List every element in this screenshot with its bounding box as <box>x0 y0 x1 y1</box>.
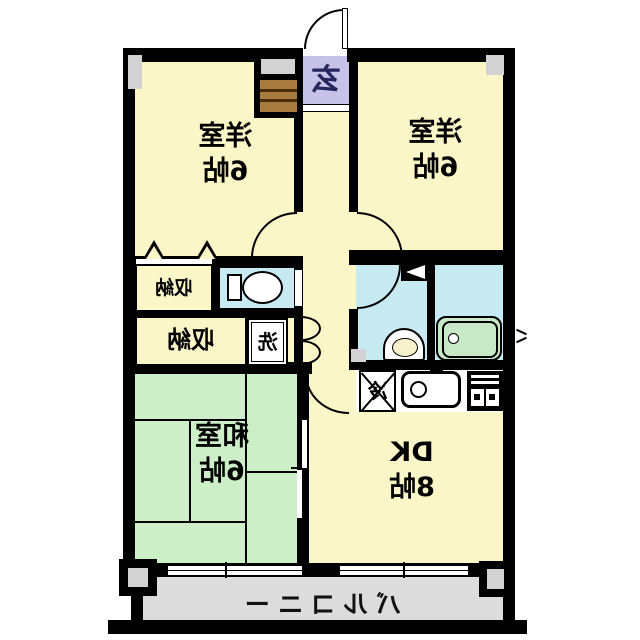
pillar-core <box>128 568 148 587</box>
burner-dot <box>489 394 495 400</box>
entrance-door-leaf <box>342 8 348 49</box>
pillar-icon <box>351 349 366 362</box>
wall-corridor-right-upper <box>349 62 358 212</box>
closet-triangle-inner <box>199 246 215 259</box>
cabinet-shelf-line <box>260 99 297 102</box>
faucet-icon <box>410 381 427 398</box>
entrance-door-arc-icon <box>304 9 344 49</box>
vent-mark-icon <box>516 329 527 335</box>
pillar-icon <box>128 55 142 89</box>
pillar-core <box>487 569 504 589</box>
bathtub-drain <box>448 333 459 344</box>
window-glass-line <box>168 570 302 571</box>
room-label-east-bedroom: 洋室6帖 <box>368 108 503 192</box>
stove-icon <box>467 371 503 411</box>
room-size: 6帖 <box>199 154 253 189</box>
room-name: 和室 <box>195 419 249 454</box>
room-name: 洋室 <box>199 119 253 154</box>
room-label-tatami: 和室6帖 <box>152 412 292 496</box>
room-name: DK <box>389 435 435 470</box>
bath-door-arrow-icon <box>406 265 425 279</box>
stove-burner <box>471 389 484 406</box>
washbasin-bowl <box>392 338 418 357</box>
floor-plan: 洋室6帖 洋室6帖 和室6帖 DK8帖 収納 収納 洗 冷 玄 バルコニー <box>0 0 640 640</box>
shoe-cabinet-icon <box>260 80 297 112</box>
stove-grill-bar <box>471 381 499 384</box>
stove-burner <box>486 389 499 406</box>
refrigerator-label: 冷 <box>359 370 396 412</box>
closet1-label: 収納 <box>137 266 211 310</box>
tatami-sliding-door-panel <box>297 470 302 518</box>
closet2-label: 収納 <box>137 318 245 364</box>
room-size: 8帖 <box>389 470 435 505</box>
wall-kitchen-top <box>349 360 503 370</box>
room-size: 6帖 <box>195 454 249 489</box>
kitchen-sink-icon <box>401 371 461 408</box>
entrance-step <box>303 104 349 112</box>
sliding-door-tick <box>291 467 302 469</box>
burner-dot <box>474 394 480 400</box>
room-label-west-bedroom: 洋室6帖 <box>158 112 293 196</box>
vent-mark-icon <box>516 337 527 343</box>
toilet-bowl <box>242 271 283 304</box>
toilet-door-opening <box>295 270 302 306</box>
balcony-label: バルコニー <box>133 587 505 623</box>
toilet-icon <box>227 274 242 301</box>
tatami-line <box>135 521 247 523</box>
wall-right <box>503 48 515 622</box>
bathtub-icon <box>436 316 502 361</box>
pillar-icon <box>486 55 504 75</box>
sliding-window-icon <box>168 566 302 575</box>
pillar-icon <box>261 59 295 74</box>
tatami-sliding-door-panel <box>302 420 307 468</box>
closet-triangle-inner <box>146 246 162 259</box>
laundry-label: 洗 <box>250 321 286 363</box>
entrance-label: 玄 <box>303 58 349 102</box>
faucet-spout <box>430 366 443 373</box>
cabinet-shelf-line <box>260 89 297 92</box>
room-name: 洋室 <box>409 115 463 150</box>
window-center-tick <box>403 562 405 578</box>
stove-grill-bar <box>471 375 499 378</box>
room-size: 6帖 <box>409 150 463 185</box>
room-label-dk: DK8帖 <box>342 428 482 512</box>
window-center-tick <box>225 562 227 578</box>
